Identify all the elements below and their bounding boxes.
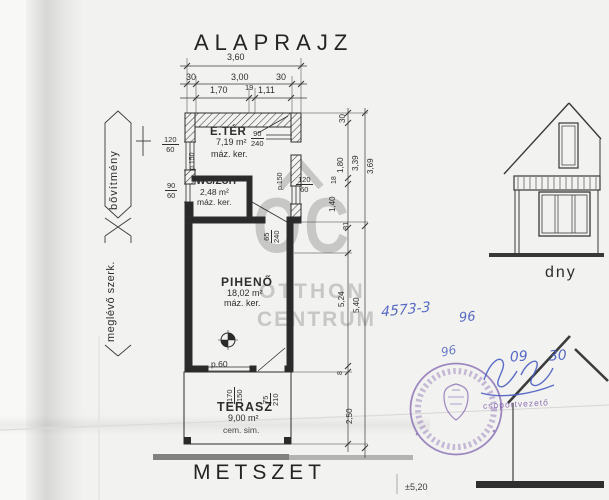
opening-window-terrace: 170 150 xyxy=(225,387,245,404)
dim-right-30: 30 xyxy=(339,114,347,123)
dim-row2-b: 3,00 xyxy=(231,73,249,82)
room-name-piheno: PIHENŐ xyxy=(221,276,273,289)
dim-numerator: 120 xyxy=(162,135,179,145)
dim-numerator: 90 xyxy=(165,181,177,191)
dim-row2-c: 30 xyxy=(276,73,286,82)
opening-door-terrace: 75 210 xyxy=(261,393,281,406)
room-area-wc: 2,48 m² xyxy=(200,188,229,197)
dim-right-18: 18 xyxy=(331,176,338,184)
dim-right-524: 5,24 xyxy=(338,291,346,307)
elevation-section-sketch xyxy=(397,336,608,494)
column-symbol xyxy=(218,330,238,350)
dim-denominator: 60 xyxy=(165,191,177,200)
drawing-linework xyxy=(0,0,609,500)
dim-row3-b: 19 xyxy=(245,84,253,92)
handwritten-09: 09 xyxy=(509,348,528,365)
room-area-terasz: 9,00 m² xyxy=(228,414,259,423)
dim-denominator: 150 xyxy=(235,387,244,404)
opening-door-internal: 65 240 xyxy=(262,230,282,243)
dim-total-width: 3,60 xyxy=(227,53,245,62)
side-label-extension: bővítmény xyxy=(109,150,121,210)
dim-numerator: 90 xyxy=(251,129,264,139)
dim-row3-c: 1,11 xyxy=(258,86,275,95)
dim-right-81: 81 xyxy=(342,222,350,230)
dim-right-140: 1,40 xyxy=(329,196,337,212)
opening-window-right: 120 60 xyxy=(296,175,313,195)
dim-numerator: 120 xyxy=(296,175,313,185)
section-title: METSZET xyxy=(193,462,326,484)
dim-denominator: 240 xyxy=(272,230,281,243)
section-strip xyxy=(153,454,413,460)
room-finish-eter: máz. ker. xyxy=(211,150,248,159)
dim-denominator: 60 xyxy=(162,145,179,154)
dim-right-8: 8 xyxy=(337,371,344,375)
dim-right-180: 1,80 xyxy=(337,157,345,173)
elevation-orientation-label: dny xyxy=(545,265,577,282)
dim-numerator: 65 xyxy=(262,230,272,243)
room-name-wc: WC/ZUH xyxy=(196,177,236,188)
elevation-dny xyxy=(489,103,604,255)
scanned-drawing-page: OC OTTHON CENTRUM xyxy=(0,0,609,500)
opening-window-wc: 90 60 xyxy=(165,181,177,201)
opening-window-eter-left: 120 60 xyxy=(162,135,179,155)
dim-row3-a: 1,70 xyxy=(210,86,228,95)
floor-note-p60: p.60 xyxy=(211,360,228,369)
side-label-existing: meglévő szerk. xyxy=(106,261,118,342)
section-level-value: ±5,20 xyxy=(405,483,427,492)
room-area-eter: 7,19 m² xyxy=(216,138,247,147)
room-finish-terasz: cem. sim. xyxy=(223,426,259,435)
dim-right-250: 2,50 xyxy=(346,408,354,424)
room-finish-wc: máz. ker. xyxy=(197,198,231,207)
handwritten-30: 30 xyxy=(548,347,567,364)
dim-row2-a: 30 xyxy=(186,73,196,82)
opening-door-eter: 90 240 xyxy=(251,129,264,149)
dim-right-369: 3,69 xyxy=(367,158,375,174)
dim-right-339: 3,39 xyxy=(352,155,360,171)
dim-denominator: 60 xyxy=(296,185,313,194)
parapet-note-right: p.150 xyxy=(277,172,284,190)
plan-title: ALAPRAJZ xyxy=(194,31,353,54)
handwritten-96-a: 96 xyxy=(458,309,476,325)
dim-numerator: 75 xyxy=(261,393,271,406)
dim-right-540: 5,40 xyxy=(353,297,361,313)
parapet-note-left: p.150 xyxy=(189,152,196,170)
dim-denominator: 210 xyxy=(271,393,280,406)
room-finish-piheno: máz. ker. xyxy=(224,299,261,308)
dim-denominator: 240 xyxy=(251,139,264,148)
dim-numerator: 170 xyxy=(225,387,235,404)
